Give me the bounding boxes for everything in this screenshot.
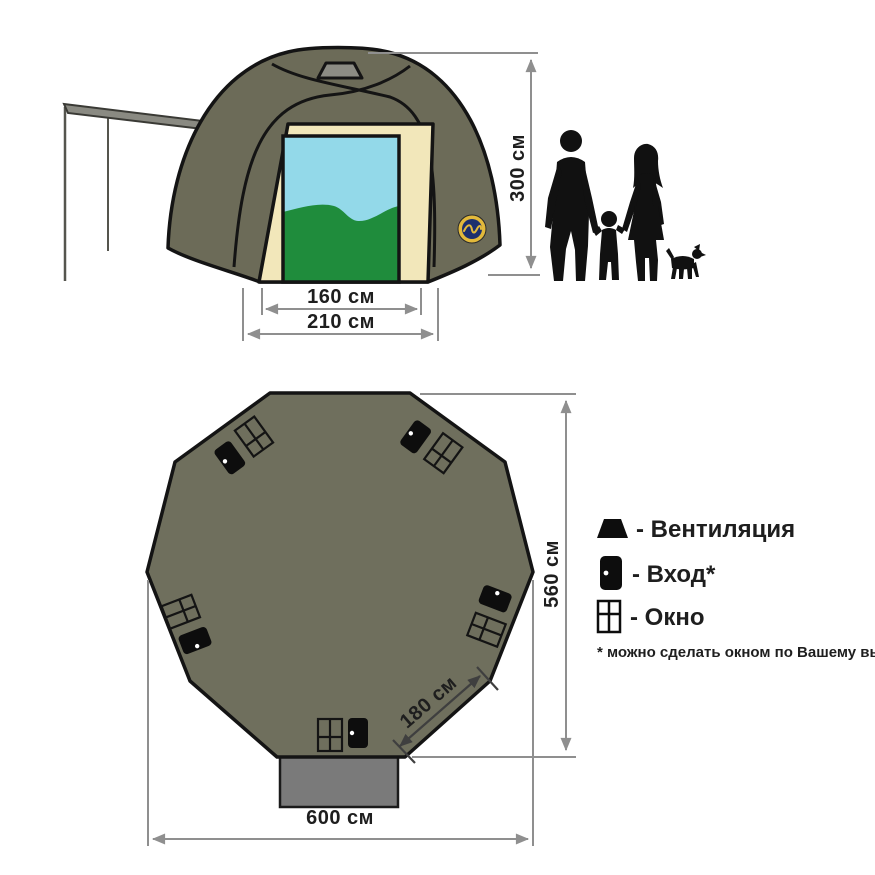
legend-door-icon xyxy=(600,556,622,590)
vent-icon xyxy=(318,63,362,78)
legend-note: * можно сделать окном по Вашему выбору xyxy=(597,644,875,661)
legend-vent-label: - Вентиляция xyxy=(636,516,795,543)
legend-entrance-label: - Вход* xyxy=(632,561,716,588)
frame-width-dimension-label: 210 см xyxy=(307,311,375,333)
height-dimension-label: 300 см xyxy=(507,134,529,202)
tent-front-view: 300 см 160 см 210 см xyxy=(64,48,706,342)
legend-item-ventilation: - Вентиляция xyxy=(597,516,795,543)
door-handle-dot xyxy=(604,571,609,576)
logo-badge xyxy=(458,215,486,243)
woman-silhouette xyxy=(622,144,664,281)
legend-window-icon xyxy=(598,601,620,632)
door-view-hills xyxy=(283,205,399,282)
family-silhouette xyxy=(545,130,706,281)
legend-vent-icon xyxy=(597,519,628,538)
legend-window-label: - Окно xyxy=(630,604,705,631)
door-opening xyxy=(283,136,399,282)
door-handle-dot xyxy=(350,731,354,735)
legend: - Вентиляция - Вход* - Окно * можно сдел… xyxy=(597,516,875,661)
door-width-dimension-label: 160 см xyxy=(307,286,375,308)
floor-outline xyxy=(147,393,533,757)
legend-item-window: - Окно xyxy=(598,601,705,632)
legend-item-entrance: - Вход* xyxy=(600,556,716,590)
depth-dimension-label: 560 см xyxy=(541,540,563,608)
width-dimension-label: 600 см xyxy=(306,807,374,829)
floor-plan: 560 см 600 см 180 см xyxy=(147,393,576,846)
child-silhouette xyxy=(593,211,625,280)
tent-diagram: 300 см 160 см 210 см xyxy=(0,0,875,875)
dog-silhouette xyxy=(666,244,706,279)
vestibule xyxy=(280,756,398,807)
man-silhouette xyxy=(545,130,599,281)
